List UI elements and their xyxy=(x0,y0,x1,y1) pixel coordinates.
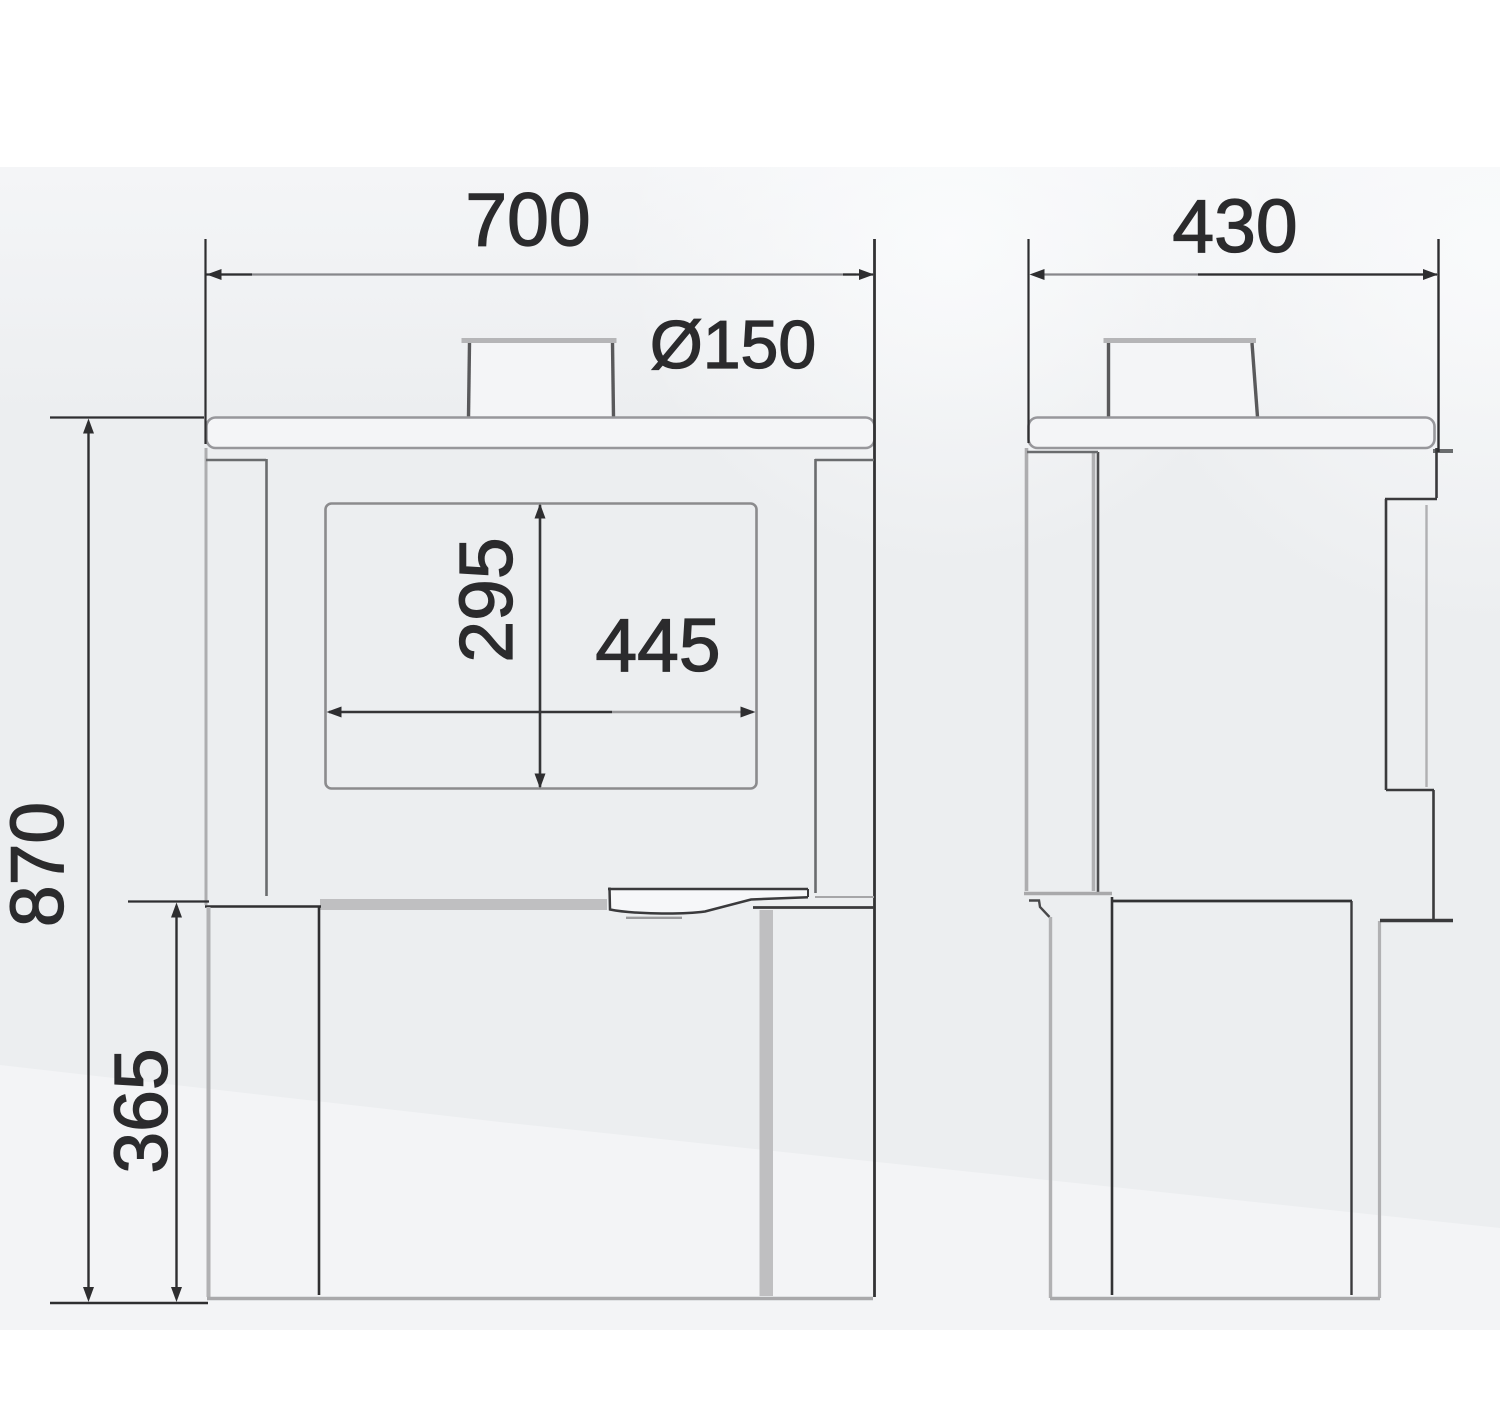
svg-text:430: 430 xyxy=(1172,184,1297,268)
svg-text:365: 365 xyxy=(99,1048,183,1173)
svg-text:Ø150: Ø150 xyxy=(650,307,816,383)
svg-text:445: 445 xyxy=(595,603,720,687)
svg-text:870: 870 xyxy=(0,802,79,927)
svg-text:700: 700 xyxy=(465,178,590,262)
svg-text:295: 295 xyxy=(444,537,528,662)
